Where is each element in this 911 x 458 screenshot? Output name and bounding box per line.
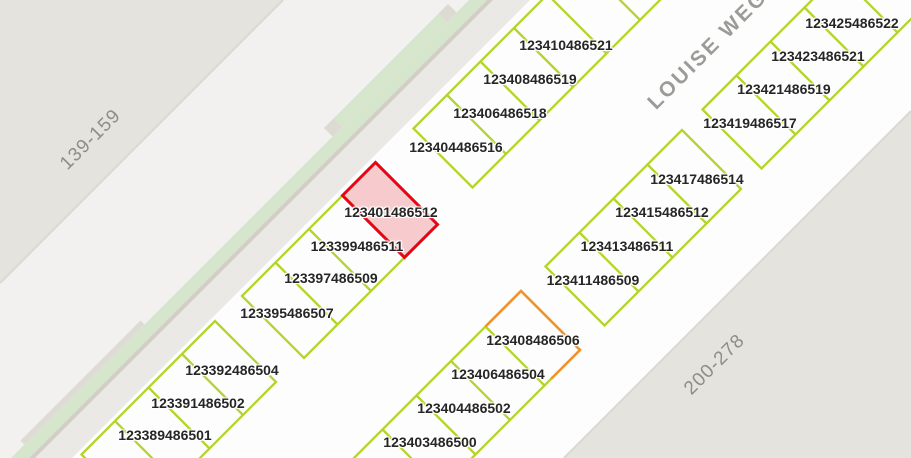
map-canvas[interactable]: LOUISE WEG 139-159 200-278 123389486501 … [0,0,911,458]
map-layers [0,0,911,458]
